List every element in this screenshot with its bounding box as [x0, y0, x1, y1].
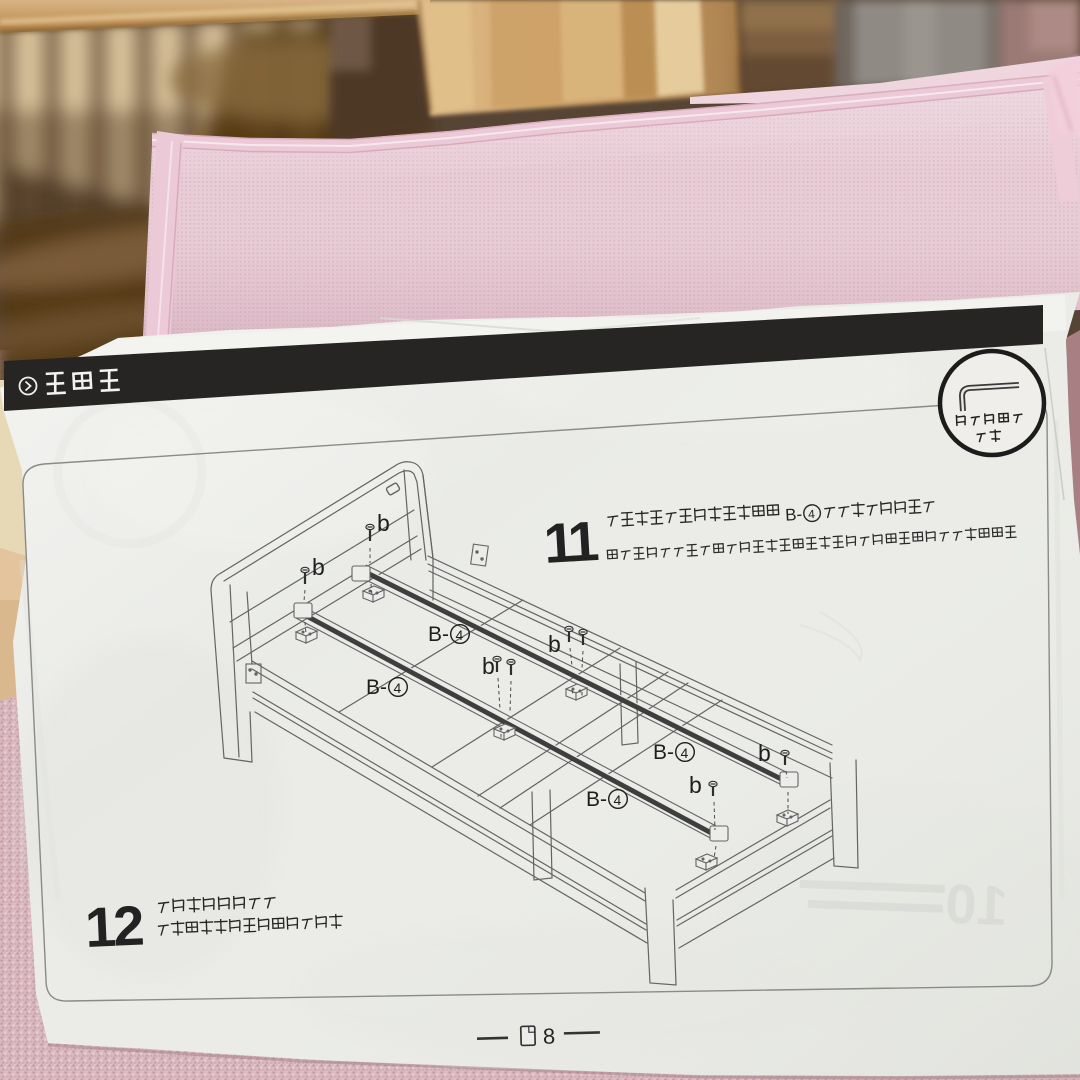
svg-text:b: b [377, 510, 390, 536]
svg-text:10: 10 [944, 872, 1008, 937]
svg-text:4: 4 [681, 745, 689, 761]
svg-text:4: 4 [394, 680, 402, 696]
svg-text:b: b [689, 772, 702, 798]
svg-text:B-: B- [428, 623, 449, 646]
svg-text:4: 4 [808, 507, 816, 521]
svg-text:4: 4 [614, 792, 622, 808]
svg-text:4: 4 [456, 627, 464, 643]
svg-text:b: b [482, 653, 495, 679]
svg-text:B-: B- [586, 788, 607, 811]
svg-text:12: 12 [84, 894, 144, 959]
svg-text:b: b [312, 554, 325, 580]
svg-text:11: 11 [542, 509, 600, 575]
svg-text:B-: B- [785, 505, 803, 525]
svg-text:B-: B- [653, 741, 674, 764]
svg-text:8: 8 [543, 1024, 556, 1049]
svg-text:B-: B- [366, 676, 387, 699]
svg-text:b: b [548, 631, 561, 657]
svg-text:b: b [758, 740, 771, 766]
